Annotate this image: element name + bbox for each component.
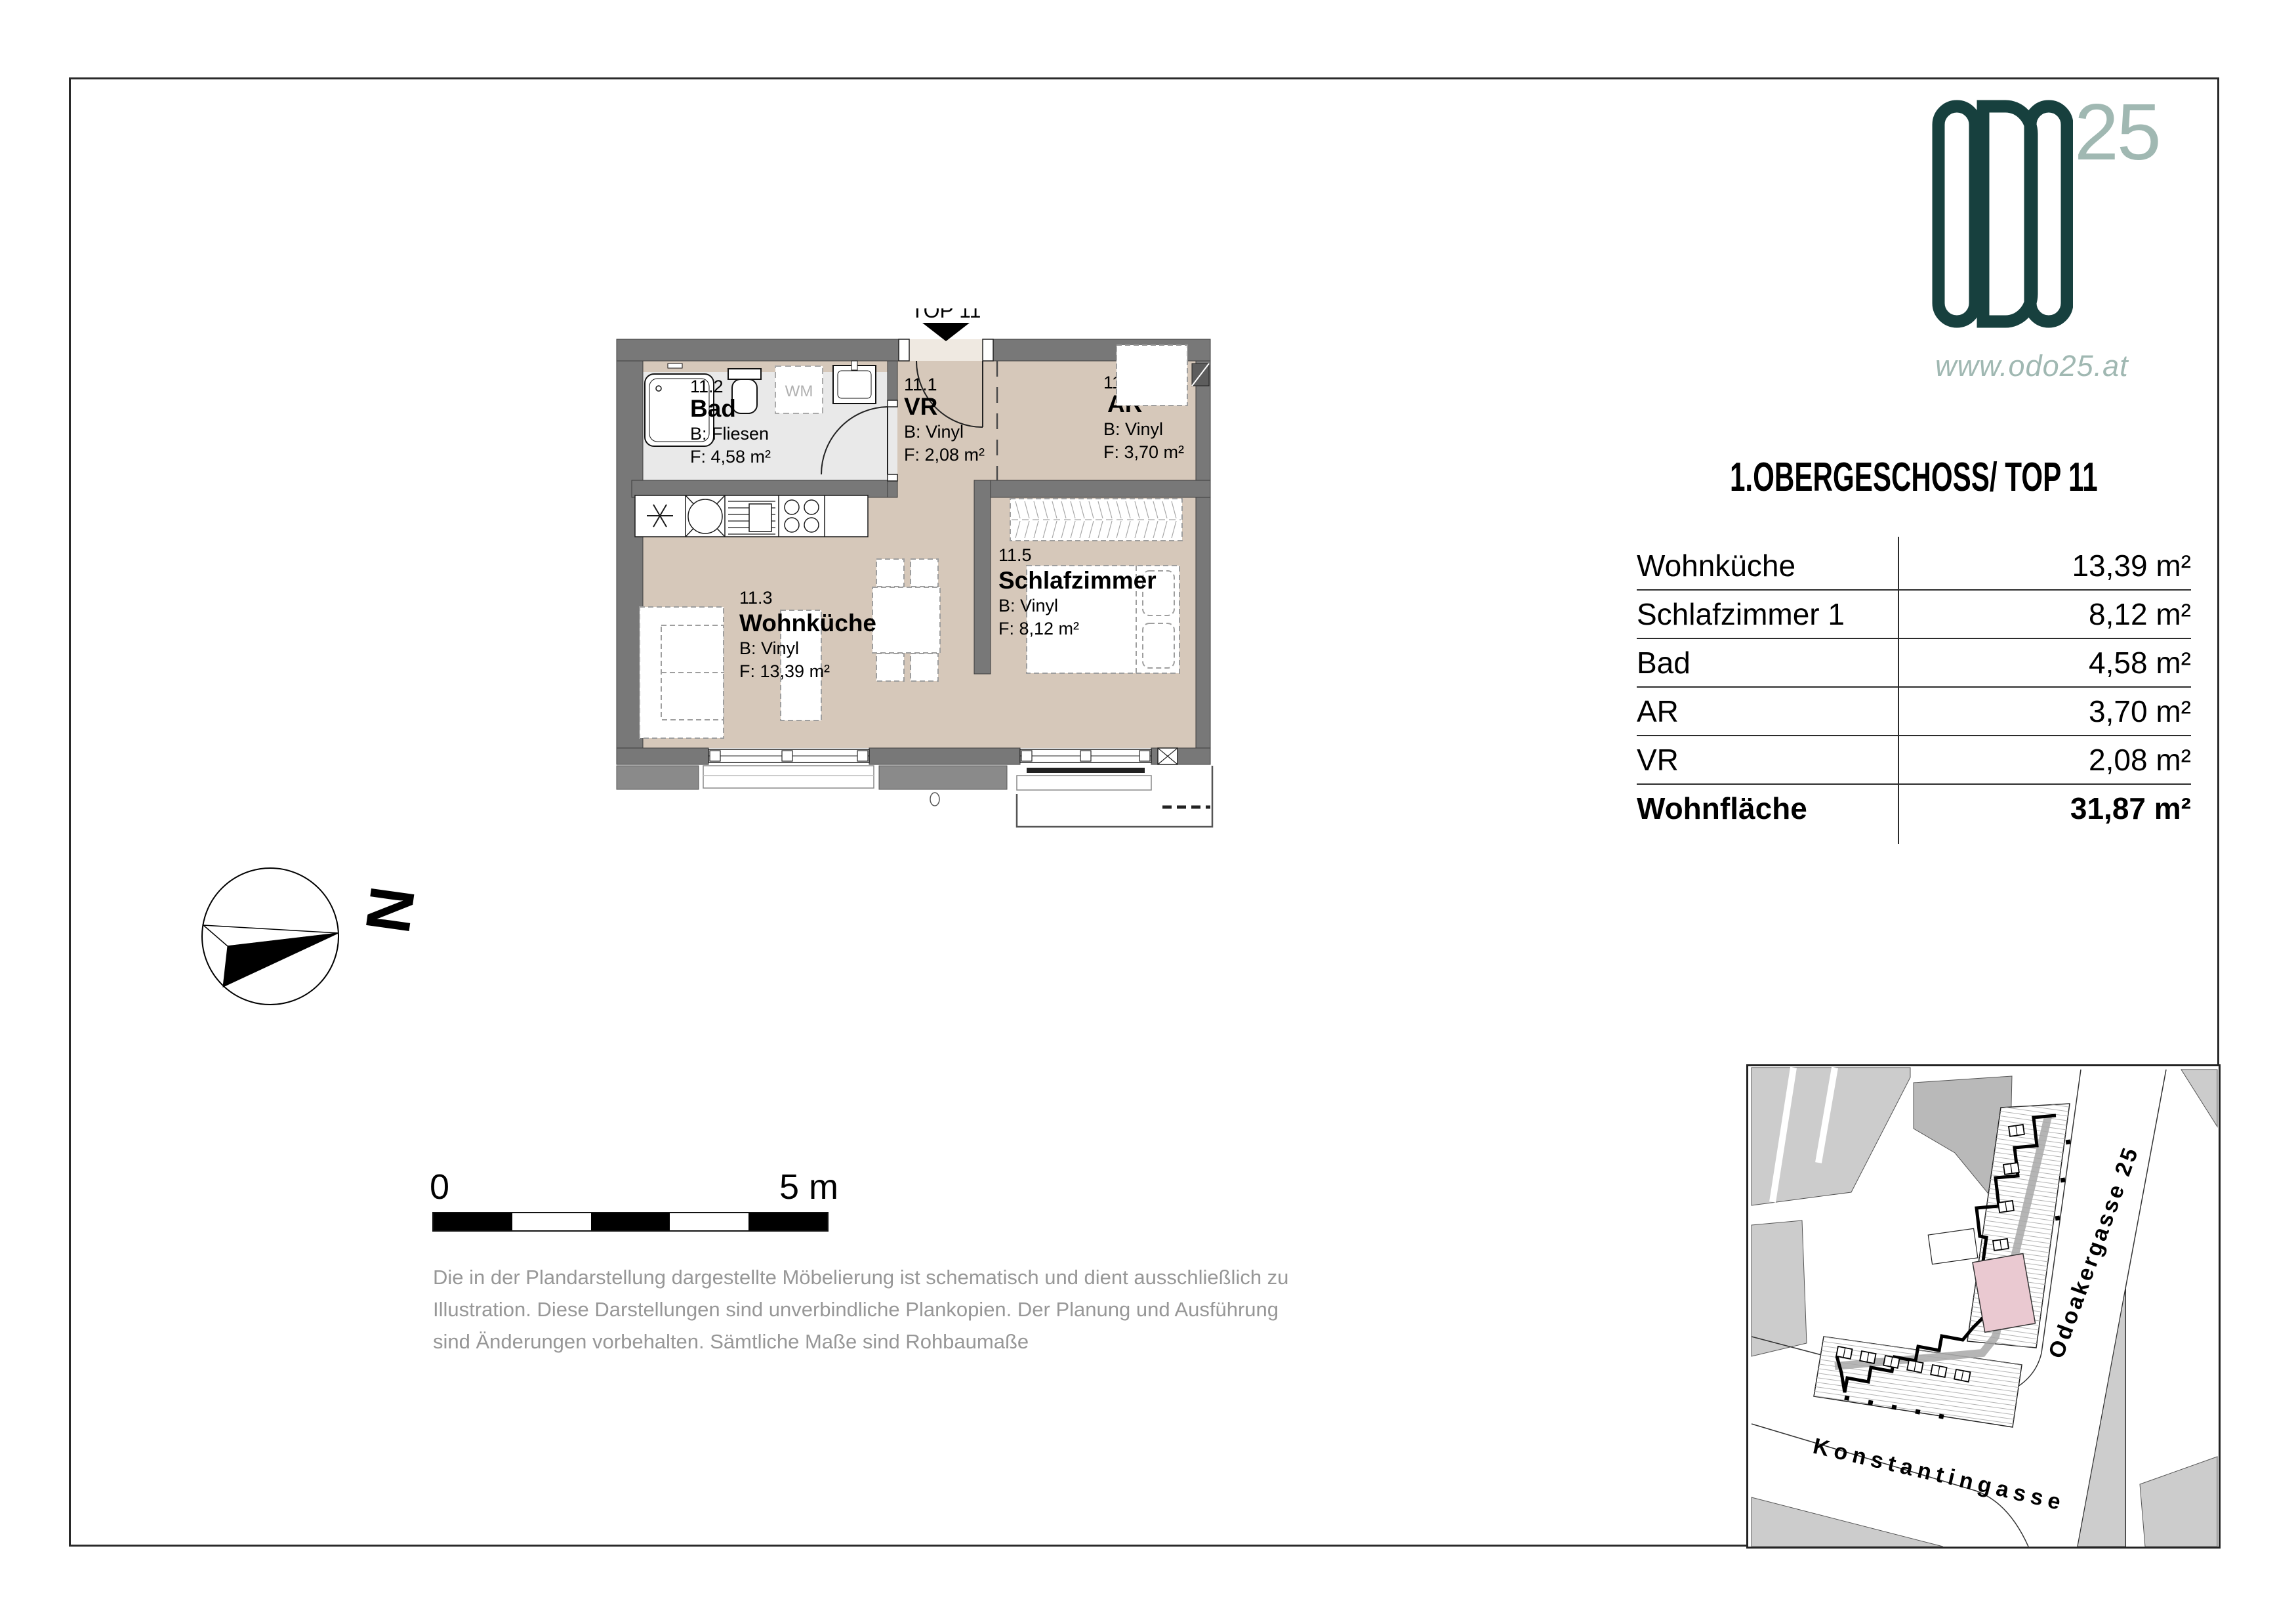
washing-machine: WM (775, 366, 823, 413)
disclaimer-line: sind Änderungen vorbehalten. Sämtliche M… (433, 1325, 1364, 1358)
washing-machine-label: WM (785, 383, 813, 400)
row-value: 13,39 m² (2072, 548, 2191, 583)
toilet-icon (728, 369, 761, 379)
north-compass-icon: N (197, 861, 446, 1015)
table-row: Bad 4,58 m² (1637, 639, 2191, 688)
row-value: 4,58 m² (2089, 645, 2191, 680)
chair-icon (876, 559, 904, 587)
unit-title: 1.OBERGESCHOSS/ TOP 11 (1637, 454, 2191, 501)
entrance-label: TOP 11 (911, 308, 981, 322)
dining-table-icon (872, 587, 940, 653)
row-label: Wohnküche (1637, 548, 1795, 583)
room-floor-vr: B: Vinyl (904, 422, 964, 442)
room-number-vr: 11.1 (904, 375, 937, 394)
unit-title-text: 1.OBERGESCHOSS/ TOP 11 (1730, 454, 2098, 501)
total-value: 31,87 m² (2070, 791, 2191, 826)
room-area-bad: F: 4,58 m² (690, 447, 771, 467)
room-floor-ar: B: Vinyl (1103, 419, 1163, 439)
table-total-row: Wohnfläche 31,87 m² (1637, 785, 2191, 832)
sink-icon (686, 495, 725, 537)
room-number-schlafzimmer: 11.5 (998, 545, 1032, 565)
scale-bar (432, 1212, 829, 1232)
brand-logo-icon (1932, 100, 2073, 328)
duct-shaft (1192, 364, 1209, 386)
scale-segment (512, 1213, 591, 1230)
room-floor-wohnkueche: B: Vinyl (739, 638, 799, 658)
disclaimer-line: Illustration. Diese Darstellungen sind u… (433, 1293, 1364, 1325)
row-value: 2,08 m² (2089, 742, 2191, 778)
chair-icon (911, 559, 938, 587)
room-area-schlafzimmer: F: 8,12 m² (998, 619, 1079, 638)
row-label: VR (1637, 742, 1679, 778)
scalebar-end-label: 5 m (779, 1167, 838, 1207)
table-row: AR 3,70 m² (1637, 688, 2191, 736)
room-area-ar: F: 3,70 m² (1103, 442, 1184, 462)
scale-segment (670, 1213, 748, 1230)
scale-segment (591, 1213, 670, 1230)
disclaimer-line: Die in der Plandarstellung dargestellte … (433, 1261, 1364, 1293)
room-number-wohnkueche: 11.3 (739, 588, 773, 608)
table-row: Wohnküche 13,39 m² (1637, 542, 2191, 591)
scale-segment (748, 1213, 827, 1230)
total-label: Wohnfläche (1637, 791, 1807, 826)
room-name-bad: Bad (690, 395, 736, 422)
row-value: 8,12 m² (2089, 596, 2191, 632)
balcony-outline (1017, 766, 1212, 827)
website-url: www.odo25.at (1935, 349, 2129, 383)
room-name-schlafzimmer: Schlafzimmer (998, 567, 1157, 594)
disclaimer-text: Die in der Plandarstellung dargestellte … (433, 1261, 1364, 1358)
table-row: VR 2,08 m² (1637, 736, 2191, 785)
room-floor-schlafzimmer: B: Vinyl (998, 596, 1058, 615)
row-label: AR (1637, 694, 1679, 729)
chair-icon (876, 654, 904, 681)
area-table: Wohnküche 13,39 m² Schlafzimmer 1 8,12 m… (1637, 542, 2191, 832)
room-floor-bad: B: Fliesen (690, 424, 769, 444)
chair-icon (911, 654, 938, 681)
row-label: Schlafzimmer 1 (1637, 596, 1845, 632)
entrance-arrow-icon (922, 323, 970, 341)
room-number-bad: 11.2 (690, 377, 724, 396)
room-name-vr: VR (904, 393, 937, 420)
ar-closet-icon (1117, 345, 1187, 406)
table-row: Schlafzimmer 1 8,12 m² (1637, 591, 2191, 639)
room-area-vr: F: 2,08 m² (904, 445, 985, 465)
room-area-wohnkueche: F: 13,39 m² (739, 661, 830, 681)
logo-25-label: 25 (2074, 92, 2160, 172)
scale-segment (434, 1213, 512, 1230)
row-label: Bad (1637, 645, 1691, 680)
north-label: N (352, 883, 428, 938)
room-name-wohnkueche: Wohnküche (739, 610, 876, 636)
floorplan: TOP 11 (604, 308, 1220, 833)
kitchen-counter (635, 495, 868, 537)
pillow-icon (1143, 623, 1174, 668)
site-map: Konstantingasse Odoakergasse 25 (1746, 1064, 2221, 1549)
row-value: 3,70 m² (2089, 694, 2191, 729)
scalebar-start-label: 0 (430, 1167, 449, 1207)
